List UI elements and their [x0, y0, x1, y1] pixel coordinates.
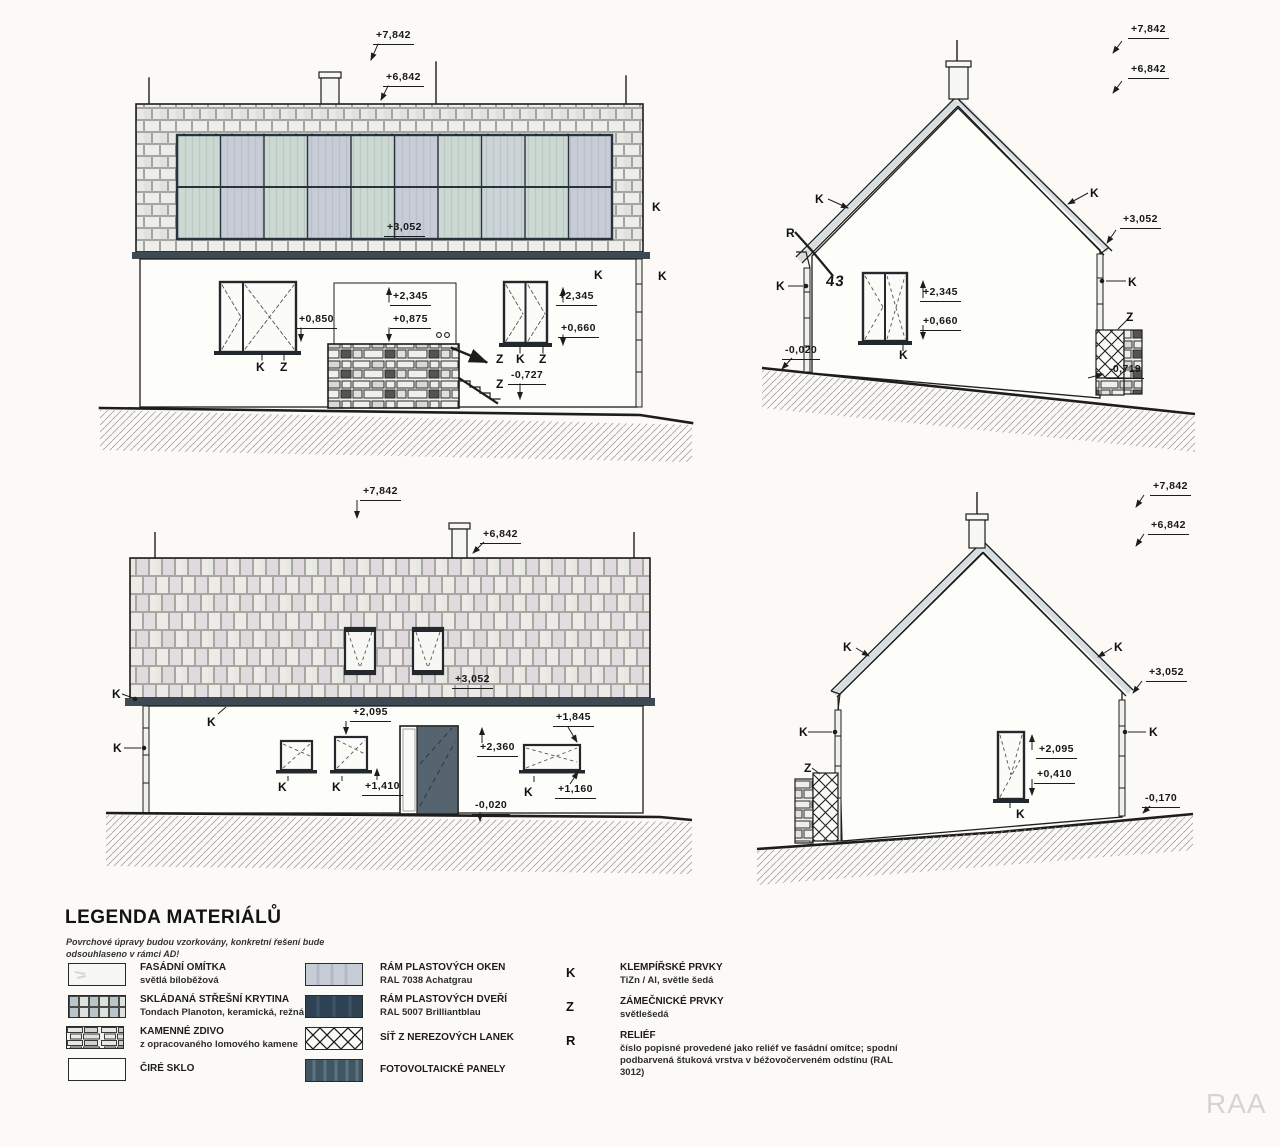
dim-eave: +3,052: [1120, 214, 1161, 229]
window: [276, 741, 317, 774]
mark-klempir: K: [1149, 726, 1158, 738]
mark-klempir: K: [516, 353, 525, 365]
chimney: [949, 67, 968, 99]
mark-klempir: K: [899, 349, 908, 361]
elevation-gable-west: [757, 492, 1193, 885]
downspout: [1119, 700, 1125, 816]
legend-note: odsouhlaseno v rámci AD!: [66, 948, 179, 961]
window: [214, 282, 301, 355]
window: [519, 745, 585, 774]
chimney-cap: [966, 514, 988, 520]
chimney: [969, 520, 985, 548]
dim-stone-top: +0,875: [390, 314, 431, 329]
downspout: [1097, 248, 1108, 332]
dim-ground: -0,170: [1142, 793, 1180, 808]
ground-hatch: [106, 815, 692, 874]
dim-roof-top: +6,842: [1148, 520, 1189, 535]
elevation-drawings: [0, 0, 1280, 905]
mark-klempir: K: [776, 280, 785, 292]
stone-wall: [328, 344, 459, 408]
elevation-front-pv: [100, 44, 692, 462]
mark-klempir: K: [256, 361, 265, 373]
plaster-swatch: [68, 963, 126, 986]
stone-wall: [1096, 378, 1124, 395]
mark-klempir: K: [332, 781, 341, 793]
mark-zamecnik: Z: [280, 361, 287, 373]
dim-roof-top: +6,842: [1128, 64, 1169, 79]
materials-legend: LEGENDA MATERIÁLŮ Povrchové úpravy budou…: [0, 900, 1280, 1147]
mark-klempir: K: [658, 270, 667, 282]
elevation-street: [106, 500, 692, 874]
mark-zamecnik: Z: [1126, 311, 1133, 323]
mark-klempir: K: [207, 716, 216, 728]
dim-window-top: +2,345: [920, 287, 961, 302]
roof-tile-swatch: [68, 995, 126, 1018]
dim-window-top: +2,095: [350, 707, 391, 722]
dim-eave: +3,052: [452, 674, 493, 689]
dim-ground: -0,020: [782, 345, 820, 360]
house-number-relief: 43: [825, 274, 845, 289]
dim-window-top: +1,845: [553, 712, 594, 727]
dim-ground: -0,020: [472, 800, 510, 815]
dim-ridge: +7,842: [1150, 481, 1191, 496]
chimney: [452, 529, 467, 559]
mark-zamecnik: Z: [804, 762, 811, 774]
downspout: [143, 706, 149, 813]
dim-window-sill: +0,850: [296, 314, 337, 329]
dim-roof-top: +6,842: [480, 529, 521, 544]
mark-klempir: K: [278, 781, 287, 793]
roof-window: [413, 628, 443, 674]
dim-window-top: +2,345: [556, 291, 597, 306]
chimney: [321, 78, 339, 105]
mark-zamecnik: Z: [539, 353, 546, 365]
mark-klempir: K: [1128, 276, 1137, 288]
chimney-cap: [946, 61, 971, 67]
stone-wall: [795, 779, 813, 843]
dim-plinth: -0,719: [1106, 364, 1144, 379]
dim-stone-height: +2,345: [390, 291, 431, 306]
dim-ridge: +7,842: [360, 486, 401, 501]
mesh-swatch: [305, 1027, 363, 1050]
watermark: RAA: [1206, 1090, 1267, 1118]
dim-window-sill: +0,660: [920, 316, 961, 331]
gutter-band: [125, 698, 655, 706]
door-frame-swatch: [305, 995, 363, 1018]
window-frame-swatch: [305, 963, 363, 986]
mark-zamecnik: Z: [496, 353, 503, 365]
chimney-cap: [449, 523, 470, 529]
window: [993, 732, 1029, 803]
glass-swatch: [68, 1058, 126, 1081]
stone-wall: [1124, 330, 1142, 394]
window: [499, 282, 552, 347]
dim-eave: +3,052: [1146, 667, 1187, 682]
dim-window-sill: +1,410: [362, 781, 403, 796]
dim-window-sill: +0,660: [558, 323, 599, 338]
dim-window-sill: +0,410: [1034, 769, 1075, 784]
dim-ridge: +7,842: [373, 30, 414, 45]
dim-roof-top: +6,842: [383, 72, 424, 87]
mark-klempir: K: [1016, 808, 1025, 820]
dim-eave: +3,052: [384, 222, 425, 237]
roof-window: [345, 628, 375, 674]
mark-zamecnik: Z: [496, 378, 503, 390]
dim-ridge: +7,842: [1128, 24, 1169, 39]
dim-terrace: -0,727: [508, 370, 546, 385]
mark-klempir: K: [815, 193, 824, 205]
mark-klempir: K: [843, 641, 852, 653]
dim-door-top: +2,360: [477, 742, 518, 757]
downspout: [636, 259, 642, 407]
legend-title: LEGENDA MATERIÁLŮ: [65, 908, 281, 927]
dim-window-sill: +1,160: [555, 784, 596, 799]
mark-klempir: K: [799, 726, 808, 738]
entrance-door: [400, 726, 458, 814]
wall: [812, 108, 1100, 398]
mark-klempir: K: [1090, 187, 1099, 199]
chimney-cap: [319, 72, 341, 78]
mark-klempir: K: [652, 201, 661, 213]
mark-klempir: K: [594, 269, 603, 281]
gutter-band: [132, 252, 650, 259]
ground-hatch: [100, 410, 692, 462]
roof-tiles: [130, 558, 650, 698]
drawing-sheet: +7,842 +6,842 +3,052 +0,850 +2,345 +0,87…: [0, 0, 1280, 1147]
mark-klempir: K: [112, 688, 121, 700]
dim-window-top: +2,095: [1036, 744, 1077, 759]
window: [330, 737, 372, 774]
mark-klempir: K: [113, 742, 122, 754]
mark-klempir: K: [524, 786, 533, 798]
wall: [838, 553, 1122, 841]
window: [858, 273, 912, 345]
pv-swatch: [305, 1059, 363, 1082]
mark-klempir: K: [1114, 641, 1123, 653]
elevation-gable-east: [762, 40, 1195, 452]
mesh-trellis: [813, 773, 838, 841]
mark-relief: R: [786, 227, 795, 239]
legend-note: Povrchové úpravy budou vzorkovány, konkr…: [66, 936, 324, 949]
stone-swatch: [66, 1026, 124, 1049]
